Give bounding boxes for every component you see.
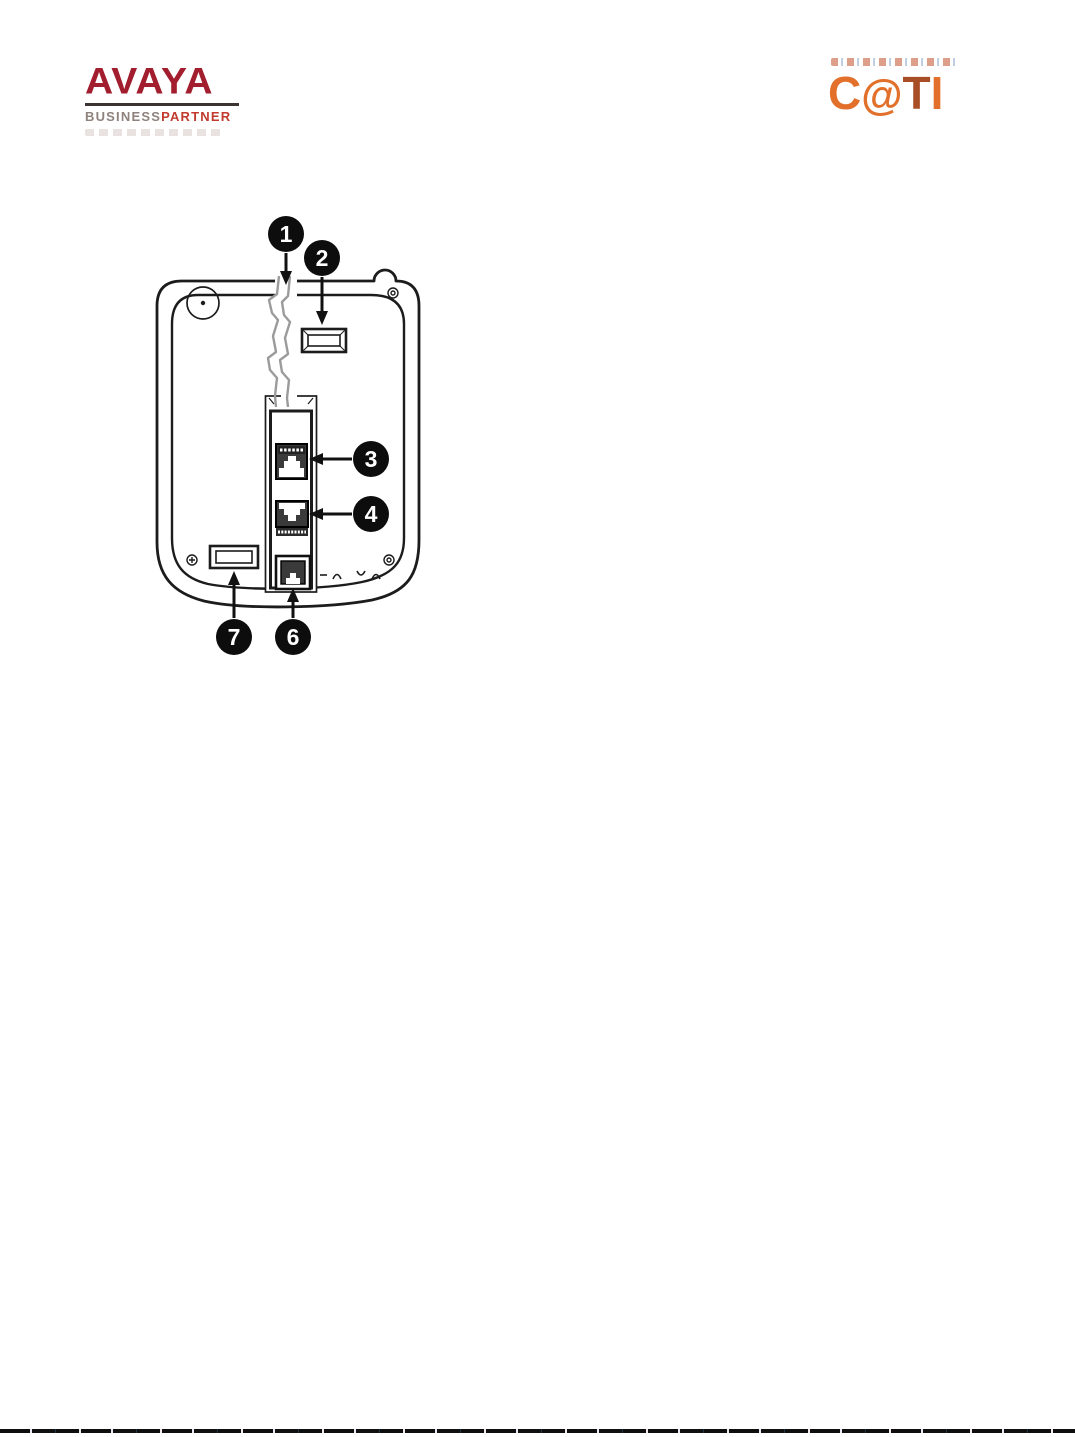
callout-3-number: 3	[365, 448, 378, 471]
callout-1: 1	[268, 216, 304, 252]
callout-4-number: 4	[365, 503, 378, 526]
lower-mounting-slot	[210, 546, 258, 568]
hanger-hole-icon	[187, 287, 219, 319]
callout-2-number: 2	[316, 247, 329, 270]
rear-panel-line-art	[140, 195, 450, 675]
callout-6-number: 6	[287, 626, 300, 649]
page-bottom-rule	[0, 1429, 1075, 1433]
column-top-gap	[281, 391, 297, 404]
upper-network-jack-icon	[276, 444, 307, 479]
callout-7-number: 7	[228, 626, 241, 649]
callout-3: 3	[353, 441, 389, 477]
callout-6: 6	[275, 619, 311, 655]
molded-marks	[320, 571, 380, 579]
bottom-handset-jack-icon	[276, 556, 310, 589]
callout-1-number: 1	[280, 223, 293, 246]
callout-2: 2	[304, 240, 340, 276]
middle-jack-icon	[276, 501, 308, 536]
callout-4: 4	[353, 496, 389, 532]
callout-7: 7	[216, 619, 252, 655]
document-page: AVAYA BUSINESSPARTNER C@TI	[0, 0, 1075, 1437]
phone-rear-panel-diagram: 1 2 3 4 6 7	[0, 0, 1075, 720]
upper-mounting-slot	[302, 329, 346, 352]
